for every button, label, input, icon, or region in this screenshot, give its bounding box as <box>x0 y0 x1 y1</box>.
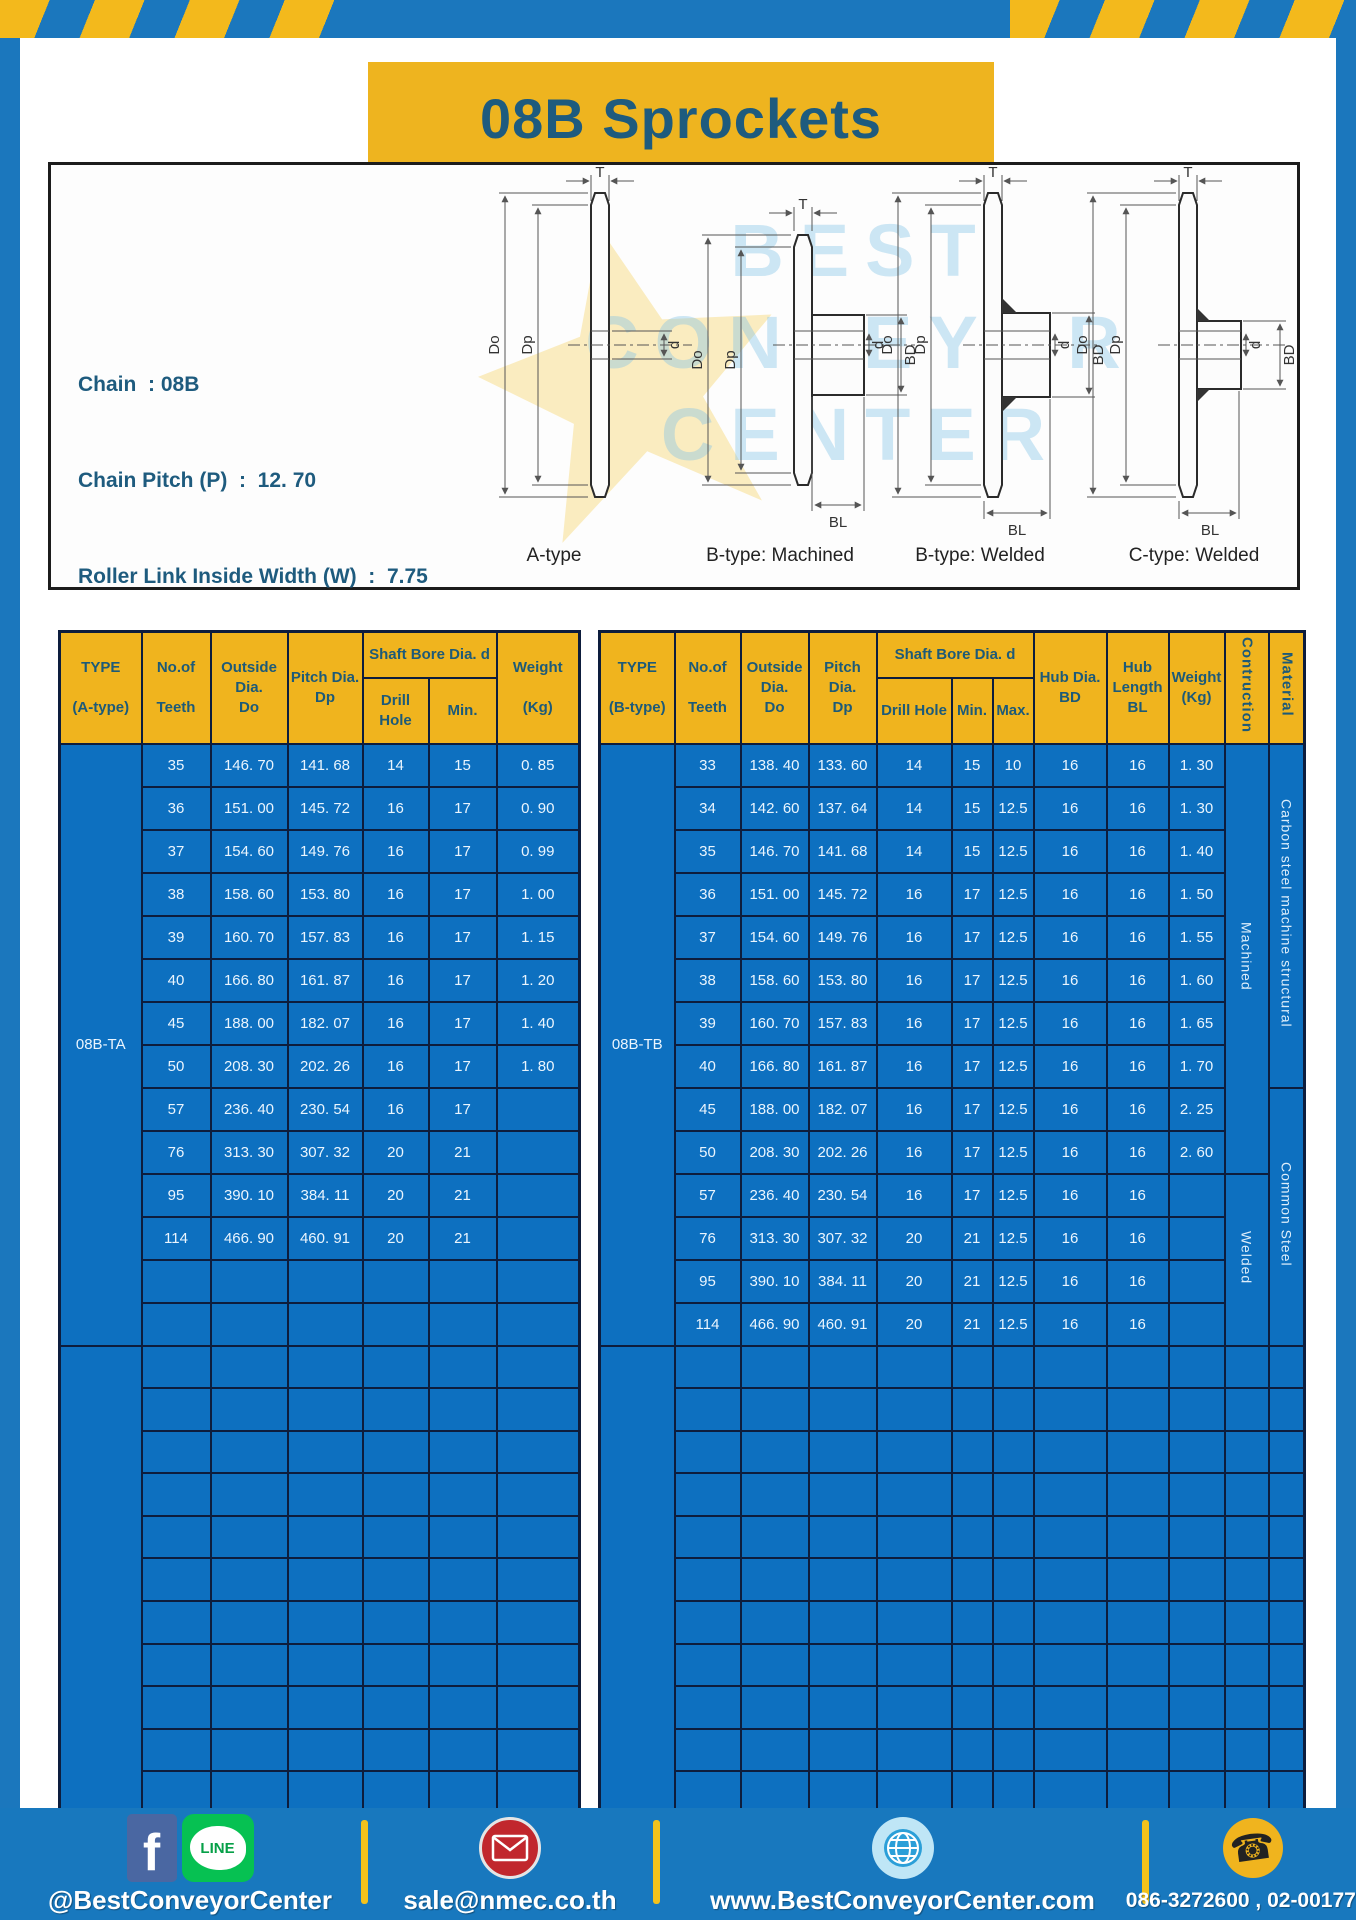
empty-cell <box>363 1644 429 1687</box>
empty-cell <box>1034 1644 1107 1687</box>
cell-do: 158. 60 <box>741 959 809 1002</box>
empty-cell <box>363 1303 429 1346</box>
empty-cell <box>809 1686 877 1729</box>
table-b-row: 40166. 80161. 87161712.516161. 70 <box>600 1045 1305 1088</box>
empty-cell <box>1269 1516 1305 1559</box>
cell-dp: 145. 72 <box>288 787 363 830</box>
empty-cell <box>497 1473 580 1516</box>
empty-cell <box>363 1473 429 1516</box>
cell-teeth: 45 <box>675 1088 741 1131</box>
cell-do: 236. 40 <box>741 1174 809 1217</box>
cell-dp: 202. 26 <box>809 1131 877 1174</box>
cell-teeth: 95 <box>675 1260 741 1303</box>
empty-cell <box>809 1346 877 1389</box>
cell-max: 12.5 <box>993 1002 1034 1045</box>
empty-cell <box>363 1431 429 1474</box>
line-icon[interactable]: LINE <box>182 1814 254 1882</box>
empty-cell <box>1225 1473 1269 1516</box>
cell-drill: 20 <box>877 1217 952 1260</box>
col-material: Material <box>1269 632 1305 744</box>
cell-do: 390. 10 <box>211 1174 288 1217</box>
cell-min: 17 <box>952 873 993 916</box>
empty-cell <box>952 1686 993 1729</box>
empty-cell <box>497 1260 580 1303</box>
cell-teeth: 38 <box>675 959 741 1002</box>
empty-cell <box>1107 1431 1169 1474</box>
empty-cell <box>741 1686 809 1729</box>
empty-cell <box>809 1644 877 1687</box>
cell-bl: 16 <box>1107 830 1169 873</box>
cell-dp: 153. 80 <box>809 959 877 1002</box>
cell-min: 17 <box>952 916 993 959</box>
cell-bd: 16 <box>1034 1303 1107 1346</box>
table-b-row: 34142. 60137. 64141512.516161. 30 <box>600 787 1305 830</box>
table-b-empty-row <box>600 1388 1305 1431</box>
title-banner: 08B Sprockets <box>368 62 994 174</box>
cell-dp: 137. 64 <box>809 787 877 830</box>
cell-bd: 16 <box>1034 959 1107 1002</box>
cell-min: 21 <box>429 1131 497 1174</box>
cell-dp: 145. 72 <box>809 873 877 916</box>
cell-weight: 0. 99 <box>497 830 580 873</box>
empty-cell <box>741 1729 809 1772</box>
cell-weight: 1. 80 <box>497 1045 580 1088</box>
footer-email[interactable]: sale@nmec.co.th <box>403 1885 616 1916</box>
cell-bd: 16 <box>1034 1260 1107 1303</box>
cell-max: 12.5 <box>993 1088 1034 1131</box>
empty-cell <box>675 1516 741 1559</box>
cell-min: 21 <box>429 1217 497 1260</box>
col-pitch-dia: Pitch Dia. Dp <box>288 632 363 744</box>
cell-min: 17 <box>429 959 497 1002</box>
empty-cell <box>1269 1644 1305 1687</box>
empty-cell <box>952 1346 993 1389</box>
cell-bd: 16 <box>1034 1002 1107 1045</box>
cell-max: 10 <box>993 744 1034 787</box>
cell-dp: 384. 11 <box>288 1174 363 1217</box>
empty-cell <box>497 1729 580 1772</box>
cell-bl: 16 <box>1107 1045 1169 1088</box>
empty-cell <box>675 1686 741 1729</box>
cell-teeth: 76 <box>675 1217 741 1260</box>
cell-dp: 230. 54 <box>288 1088 363 1131</box>
cell-weight: 0. 85 <box>497 744 580 787</box>
empty-cell <box>288 1303 363 1346</box>
col-type: TYPE (B-type) <box>600 632 675 744</box>
cell-weight: 2. 60 <box>1169 1131 1225 1174</box>
cell-drill: 20 <box>877 1260 952 1303</box>
cell-min: 17 <box>952 959 993 1002</box>
cell-drill: 16 <box>877 1174 952 1217</box>
empty-cell <box>288 1686 363 1729</box>
empty-cell <box>1269 1431 1305 1474</box>
empty-cell <box>142 1729 211 1772</box>
page-title: 08B Sprockets <box>480 86 882 151</box>
col-hub-length: Hub Length BL <box>1107 632 1169 744</box>
cell-bl: 16 <box>1107 1002 1169 1045</box>
empty-cell <box>142 1346 211 1389</box>
cell-dp: 202. 26 <box>288 1045 363 1088</box>
table-b-type: TYPE (B-type) No.of Teeth Outside Dia. D… <box>598 630 1306 1816</box>
diagram-label-a-type: A-type <box>527 545 582 567</box>
cell-min: 17 <box>952 1002 993 1045</box>
cell-do: 466. 90 <box>211 1217 288 1260</box>
empty-cell <box>809 1729 877 1772</box>
empty-cell <box>288 1388 363 1431</box>
empty-cell <box>211 1516 288 1559</box>
empty-cell <box>1225 1686 1269 1729</box>
empty-cell <box>952 1516 993 1559</box>
cell-max: 12.5 <box>993 1174 1034 1217</box>
empty-cell <box>288 1473 363 1516</box>
empty-cell <box>741 1644 809 1687</box>
cell-teeth: 36 <box>142 787 211 830</box>
empty-cell <box>741 1516 809 1559</box>
cell-drill: 20 <box>877 1303 952 1346</box>
cell-teeth: 50 <box>142 1045 211 1088</box>
cell-bd: 16 <box>1034 830 1107 873</box>
table-b-row: 38158. 60153. 80161712.516161. 60 <box>600 959 1305 1002</box>
cell-teeth: 39 <box>142 916 211 959</box>
cell-weight: 1. 30 <box>1169 787 1225 830</box>
cell-drill: 16 <box>877 1002 952 1045</box>
empty-cell <box>429 1346 497 1389</box>
col-shaft-bore: Shaft Bore Dia. d <box>363 632 497 678</box>
col-outside-dia: Outside Dia. Do <box>741 632 809 744</box>
cell-weight <box>1169 1303 1225 1346</box>
dim-label-t: T <box>1183 165 1192 181</box>
col-type: TYPE (A-type) <box>60 632 142 744</box>
table-b-empty-row <box>600 1346 1305 1389</box>
empty-cell <box>1107 1473 1169 1516</box>
page: 08B Sprockets BEST CONVEYOR CENTER T <box>0 0 1356 1920</box>
table-b-empty-row <box>600 1686 1305 1729</box>
dim-label-bl: BL <box>1201 522 1219 539</box>
cell-do: 466. 90 <box>741 1303 809 1346</box>
table-b-row: 76313. 30307. 32202112.51616 <box>600 1217 1305 1260</box>
cell-bl: 16 <box>1107 1217 1169 1260</box>
cell-weight: 1. 40 <box>1169 830 1225 873</box>
empty-cell <box>497 1644 580 1687</box>
cell-do: 166. 80 <box>211 959 288 1002</box>
globe-icon[interactable] <box>872 1817 934 1879</box>
cell-min: 21 <box>952 1217 993 1260</box>
cell-min: 17 <box>429 1045 497 1088</box>
cell-weight <box>497 1174 580 1217</box>
cell-bl: 16 <box>1107 1303 1169 1346</box>
empty-cell <box>429 1473 497 1516</box>
dim-label-do: Do <box>486 335 503 354</box>
footer-social-handle[interactable]: @BestConveyorCenter <box>48 1885 332 1916</box>
cell-max: 12.5 <box>993 1217 1034 1260</box>
dim-label-dp: Dp <box>722 350 739 369</box>
empty-cell <box>142 1686 211 1729</box>
table-b-empty-row <box>600 1558 1305 1601</box>
cell-bd: 16 <box>1034 744 1107 787</box>
table-a-type: TYPE (A-type) No.of Teeth Outside Dia. D… <box>58 630 581 1816</box>
cell-drill: 16 <box>363 873 429 916</box>
empty-cell <box>1225 1601 1269 1644</box>
empty-cell <box>809 1601 877 1644</box>
empty-cell <box>1225 1431 1269 1474</box>
empty-cell <box>1034 1516 1107 1559</box>
empty-cell <box>952 1388 993 1431</box>
footer-bar: f LINE @BestConveyorCenter sale@nmec.co.… <box>0 1808 1356 1920</box>
cell-drill: 16 <box>363 1088 429 1131</box>
empty-cell <box>675 1346 741 1389</box>
cell-dp: 460. 91 <box>809 1303 877 1346</box>
cell-bd: 16 <box>1034 873 1107 916</box>
cell-teeth: 114 <box>675 1303 741 1346</box>
dim-label-bd: BD <box>1281 344 1297 365</box>
col-pitch-dia: Pitch Dia. Dp <box>809 632 877 744</box>
cell-do: 166. 80 <box>741 1045 809 1088</box>
empty-cell <box>675 1473 741 1516</box>
cell-bd: 16 <box>1034 1217 1107 1260</box>
cell-weight: 1. 30 <box>1169 744 1225 787</box>
empty-cell <box>211 1346 288 1389</box>
cell-drill: 16 <box>363 916 429 959</box>
cell-teeth: 33 <box>675 744 741 787</box>
cell-teeth: 95 <box>142 1174 211 1217</box>
cell-teeth: 45 <box>142 1002 211 1045</box>
cell-dp: 141. 68 <box>809 830 877 873</box>
empty-cell <box>675 1558 741 1601</box>
cell-dp: 149. 76 <box>809 916 877 959</box>
empty-cell <box>497 1388 580 1431</box>
empty-cell <box>1107 1729 1169 1772</box>
empty-cell <box>809 1558 877 1601</box>
empty-cell <box>1034 1473 1107 1516</box>
empty-cell <box>1269 1346 1305 1389</box>
cell-min: 17 <box>429 1002 497 1045</box>
top-hazard-band <box>0 0 1356 38</box>
col-outside-dia: Outside Dia. Do <box>211 632 288 744</box>
empty-cell <box>1034 1431 1107 1474</box>
empty-cell <box>877 1473 952 1516</box>
empty-cell <box>877 1346 952 1389</box>
cell-weight <box>1169 1217 1225 1260</box>
email-icon[interactable] <box>479 1817 541 1879</box>
sprocket-b-machined-drawing: T Do Dp d BD BL <box>689 196 919 531</box>
cell-do: 313. 30 <box>741 1217 809 1260</box>
cell-weight <box>1169 1260 1225 1303</box>
cell-weight: 0. 90 <box>497 787 580 830</box>
col-drill-hole: Drill Hole <box>363 678 429 744</box>
cell-drill: 16 <box>877 1045 952 1088</box>
footer-website[interactable]: www.BestConveyorCenter.com <box>710 1885 1095 1916</box>
empty-cell <box>1107 1388 1169 1431</box>
empty-cell <box>288 1431 363 1474</box>
col-drill-hole: Drill Hole <box>877 678 952 744</box>
cell-dp: 161. 87 <box>288 959 363 1002</box>
dim-label-t: T <box>798 196 807 213</box>
cell-max: 12.5 <box>993 830 1034 873</box>
empty-cell <box>363 1601 429 1644</box>
cell-drill: 14 <box>877 830 952 873</box>
cell-min: 17 <box>429 787 497 830</box>
empty-cell <box>1169 1686 1225 1729</box>
empty-cell <box>288 1601 363 1644</box>
cell-max: 12.5 <box>993 916 1034 959</box>
cell-dp: 460. 91 <box>288 1217 363 1260</box>
col-max: Max. <box>993 678 1034 744</box>
material-cell-label: Common Steel <box>1278 1162 1294 1267</box>
cell-drill: 16 <box>877 916 952 959</box>
hazard-stripes-left <box>0 0 338 38</box>
empty-cell <box>993 1346 1034 1389</box>
cell-teeth: 35 <box>675 830 741 873</box>
cell-teeth: 37 <box>142 830 211 873</box>
empty-cell <box>1169 1388 1225 1431</box>
cell-bl: 16 <box>1107 1131 1169 1174</box>
cell-bl: 16 <box>1107 916 1169 959</box>
empty-cell <box>429 1601 497 1644</box>
empty-cell <box>741 1558 809 1601</box>
empty-cell <box>211 1558 288 1601</box>
phone-icon[interactable]: ☎ <box>1223 1818 1283 1878</box>
table-a-empty-row <box>60 1346 580 1389</box>
empty-cell <box>142 1473 211 1516</box>
cell-teeth: 37 <box>675 916 741 959</box>
footer-phone-numbers[interactable]: 086-3272600 , 02-0017766 <box>1126 1889 1356 1913</box>
cell-do: 151. 00 <box>741 873 809 916</box>
empty-cell <box>211 1260 288 1303</box>
empty-cell <box>952 1431 993 1474</box>
type-cell-a: 08B-TA <box>60 744 142 1346</box>
empty-cell <box>1169 1473 1225 1516</box>
footer-web-group: www.BestConveyorCenter.com <box>670 1808 1135 1920</box>
cell-drill: 20 <box>363 1217 429 1260</box>
empty-cell <box>429 1558 497 1601</box>
cell-do: 154. 60 <box>741 916 809 959</box>
empty-cell <box>429 1260 497 1303</box>
cell-dp: 157. 83 <box>288 916 363 959</box>
construction-cell: Welded <box>1225 1174 1269 1346</box>
empty-cell <box>1034 1388 1107 1431</box>
empty-cell <box>1225 1388 1269 1431</box>
empty-cell <box>809 1516 877 1559</box>
empty-cell <box>952 1473 993 1516</box>
cell-weight <box>497 1217 580 1260</box>
hazard-stripes-right <box>1010 0 1356 38</box>
empty-cell <box>952 1601 993 1644</box>
cell-teeth: 34 <box>675 787 741 830</box>
empty-cell <box>211 1303 288 1346</box>
cell-min: 15 <box>952 830 993 873</box>
empty-cell <box>675 1644 741 1687</box>
dim-label-d: d <box>1056 341 1073 349</box>
cell-teeth: 38 <box>142 873 211 916</box>
cell-bl: 16 <box>1107 959 1169 1002</box>
table-b-row: 37154. 60149. 76161712.516161. 55 <box>600 916 1305 959</box>
empty-cell <box>1269 1729 1305 1772</box>
cell-do: 236. 40 <box>211 1088 288 1131</box>
dim-label-dp: Dp <box>1107 335 1124 354</box>
cell-teeth: 57 <box>675 1174 741 1217</box>
empty-cell <box>877 1558 952 1601</box>
spec-line: Chain : 08B <box>78 369 428 401</box>
cell-drill: 14 <box>877 787 952 830</box>
dim-label-do: Do <box>879 335 896 354</box>
table-b-empty-row <box>600 1431 1305 1474</box>
cell-bd: 16 <box>1034 787 1107 830</box>
cell-max: 12.5 <box>993 959 1034 1002</box>
diagram-label-c-welded: C-type: Welded <box>1129 545 1260 567</box>
sprocket-c-welded-drawing: T Do Dp d BD BL <box>1074 165 1297 539</box>
empty-cell <box>142 1601 211 1644</box>
table-a-row: 08B-TA35146. 70141. 6814150. 85 <box>60 744 580 787</box>
cell-min: 21 <box>952 1260 993 1303</box>
construction-cell-label: Welded <box>1239 1231 1255 1284</box>
empty-cell <box>877 1729 952 1772</box>
empty-cell <box>993 1601 1034 1644</box>
cell-teeth: 50 <box>675 1131 741 1174</box>
empty-cell <box>1225 1346 1269 1389</box>
cell-weight: 1. 20 <box>497 959 580 1002</box>
empty-cell <box>1034 1346 1107 1389</box>
cell-do: 160. 70 <box>211 916 288 959</box>
cell-min: 17 <box>952 1088 993 1131</box>
empty-cell <box>993 1431 1034 1474</box>
empty-cell <box>429 1431 497 1474</box>
cell-teeth: 39 <box>675 1002 741 1045</box>
dim-label-do: Do <box>1074 335 1091 354</box>
type-cell-a-blank <box>60 1346 142 1815</box>
empty-cell <box>1169 1516 1225 1559</box>
col-material-label: Material <box>1276 652 1296 717</box>
cell-weight: 1. 60 <box>1169 959 1225 1002</box>
empty-cell <box>1225 1729 1269 1772</box>
footer-email-group: sale@nmec.co.th <box>375 1808 645 1920</box>
cell-drill: 20 <box>363 1131 429 1174</box>
empty-cell <box>1034 1686 1107 1729</box>
cell-min: 17 <box>429 873 497 916</box>
cell-min: 17 <box>429 830 497 873</box>
empty-cell <box>363 1686 429 1729</box>
cell-min: 15 <box>429 744 497 787</box>
cell-dp: 307. 32 <box>288 1131 363 1174</box>
table-b-row: 45188. 00182. 07161712.516162. 25Common … <box>600 1088 1305 1131</box>
facebook-icon[interactable]: f <box>127 1814 177 1882</box>
diagram-box: BEST CONVEYOR CENTER T Do <box>48 162 1300 590</box>
empty-cell <box>497 1601 580 1644</box>
empty-cell <box>1034 1729 1107 1772</box>
cell-teeth: 57 <box>142 1088 211 1131</box>
cell-bl: 16 <box>1107 873 1169 916</box>
cell-min: 17 <box>952 1174 993 1217</box>
empty-cell <box>363 1516 429 1559</box>
col-min: Min. <box>952 678 993 744</box>
cell-teeth: 40 <box>675 1045 741 1088</box>
cell-weight: 1. 65 <box>1169 1002 1225 1045</box>
cell-bl: 16 <box>1107 744 1169 787</box>
col-teeth: No.of Teeth <box>675 632 741 744</box>
type-cell-b-blank <box>600 1346 675 1815</box>
empty-cell <box>809 1473 877 1516</box>
empty-cell <box>741 1601 809 1644</box>
empty-cell <box>952 1729 993 1772</box>
sprocket-a-drawing: T Do Dp d <box>486 165 692 497</box>
empty-cell <box>1269 1388 1305 1431</box>
empty-cell <box>1169 1601 1225 1644</box>
dim-label-dp: Dp <box>912 335 929 354</box>
cell-min: 21 <box>952 1303 993 1346</box>
empty-cell <box>993 1473 1034 1516</box>
dim-label-d: d <box>666 341 683 349</box>
cell-weight: 2. 25 <box>1169 1088 1225 1131</box>
cell-drill: 16 <box>877 1088 952 1131</box>
